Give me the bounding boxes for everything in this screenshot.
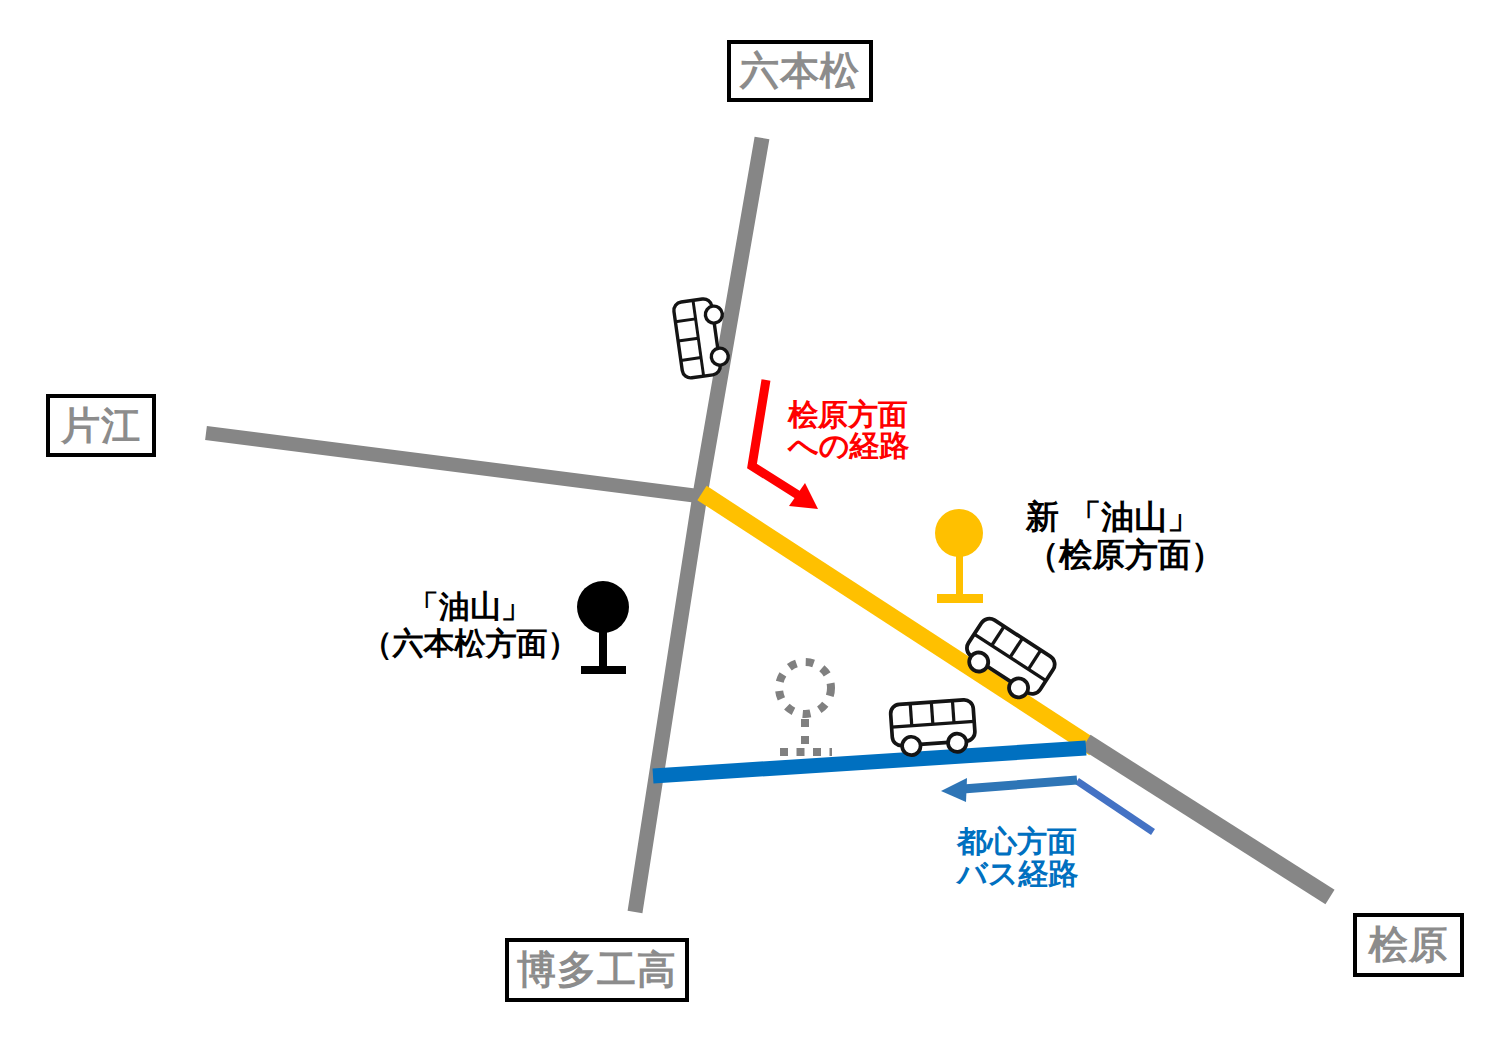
new-stop-label-line2: （桧原方面）	[1026, 536, 1224, 574]
route-citybound-blue	[653, 748, 1086, 776]
bus-stop-removed-marker	[779, 662, 832, 752]
place-label-hakatakoko: 博多工高	[505, 938, 689, 1002]
blue-route-arrow	[941, 778, 1153, 832]
blue-arrow-head	[941, 778, 967, 802]
road-katae	[206, 433, 706, 497]
current-stop-label: 「油山」 （六本松方面）	[360, 588, 580, 662]
place-label-hibaru: 桧原	[1353, 913, 1464, 977]
bus-icon-blue-route	[890, 699, 976, 756]
diagram-svg	[0, 0, 1500, 1039]
hibaru-route-annotation: 桧原方面 への経路	[788, 399, 909, 461]
blue-arrow-shaft	[963, 780, 1077, 789]
hibaru-route-annotation-line2: への経路	[788, 430, 909, 461]
dotted-stop-circle	[779, 662, 831, 714]
new-stop-label-line1: 新 「油山」	[1026, 498, 1224, 536]
current-stop-circle	[577, 581, 629, 633]
road-hibaru	[1086, 742, 1330, 897]
city-route-annotation-line2: バス経路	[957, 858, 1078, 890]
route-diagram: 六本松 片江 博多工高 桧原 「油山」 （六本松方面） 新 「油山」 （桧原方面…	[0, 0, 1500, 1039]
city-route-annotation-line1: 都心方面	[957, 826, 1078, 858]
current-stop-label-line1: 「油山」	[360, 588, 580, 625]
new-stop-circle	[935, 509, 983, 557]
current-stop-label-line2: （六本松方面）	[360, 625, 580, 662]
city-route-annotation: 都心方面 バス経路	[957, 826, 1078, 890]
place-label-katae: 片江	[46, 394, 156, 457]
new-stop-pole	[956, 555, 963, 596]
new-stop-base	[937, 594, 983, 603]
new-stop-label: 新 「油山」 （桧原方面）	[1026, 498, 1224, 574]
blue-arrow-tail	[1077, 781, 1153, 832]
current-stop-base	[581, 666, 626, 674]
bus-stop-current-marker	[577, 581, 629, 674]
hibaru-route-annotation-line1: 桧原方面	[788, 399, 909, 430]
current-stop-pole	[599, 630, 607, 670]
bus-stop-new-marker	[935, 509, 983, 603]
place-label-ropponmatsu: 六本松	[727, 40, 873, 102]
